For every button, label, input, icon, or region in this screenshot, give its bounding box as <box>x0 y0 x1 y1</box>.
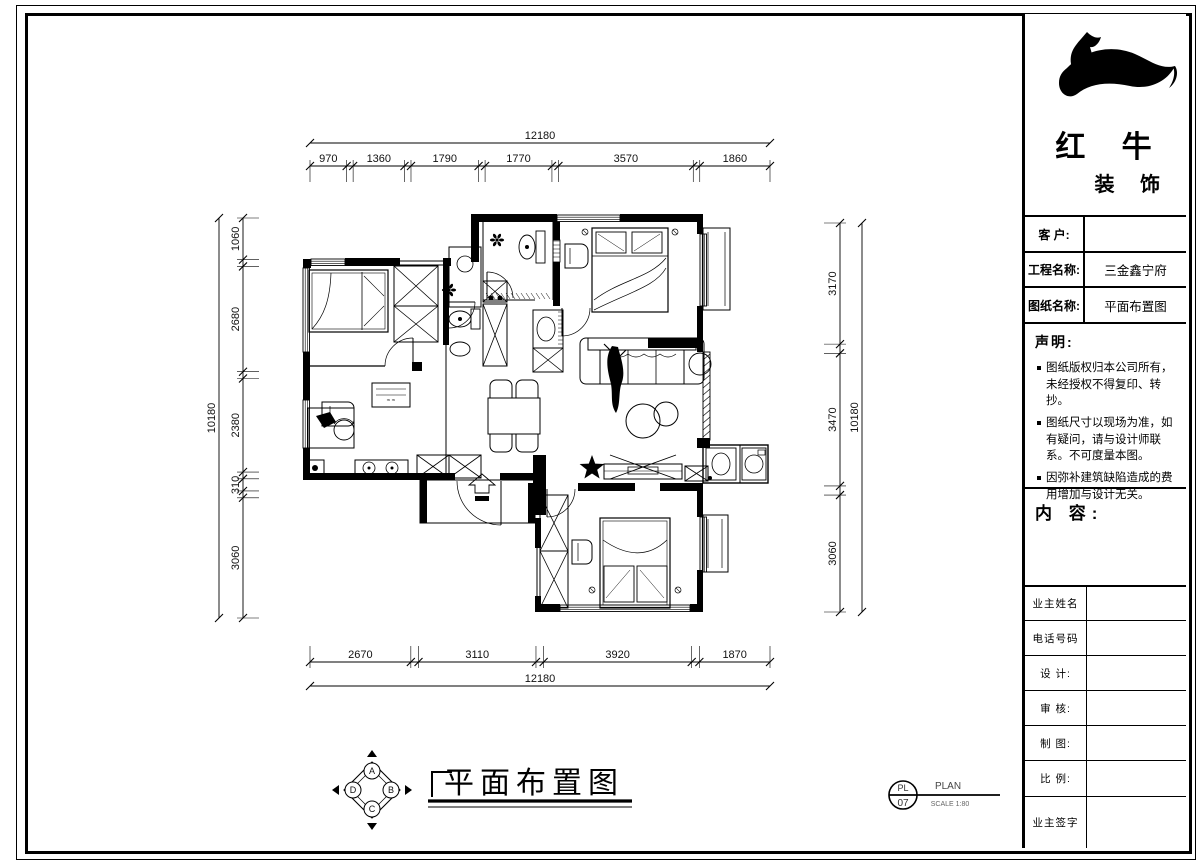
project-label: 工程名称: <box>1025 253 1085 286</box>
project-row: 工程名称: 三金鑫宁府 <box>1025 251 1186 286</box>
svg-text:1870: 1870 <box>722 649 746 661</box>
svg-text:12180: 12180 <box>525 673 556 685</box>
sign-row-draft: 制 图: <box>1025 725 1186 760</box>
sign-row-scale: 比 例: <box>1025 760 1186 796</box>
title-block: 红 牛 装 饰 客 户: 工程名称: 三金鑫宁府 图纸名称: 平面布置图 声明:… <box>1022 14 1186 848</box>
client-row: 客 户: <box>1025 215 1186 251</box>
company-logo: 红 牛 装 饰 <box>1025 14 1186 215</box>
svg-text:1060: 1060 <box>230 227 242 251</box>
project-value: 三金鑫宁府 <box>1085 253 1186 286</box>
statement-item: 图纸版权归本公司所有，未经授权不得复印、转抄。 <box>1035 360 1178 410</box>
statement-section: 声明: 图纸版权归本公司所有，未经授权不得复印、转抄。 图纸尺寸以现场为准，如有… <box>1025 322 1186 487</box>
furniture: ≈ ≈ <box>306 228 766 608</box>
svg-text:10180: 10180 <box>206 403 218 434</box>
drawing-name-value: 平面布置图 <box>1085 288 1186 322</box>
sign-row-review: 审 核: <box>1025 690 1186 725</box>
svg-text:平面布置图: 平面布置图 <box>444 767 624 800</box>
statement-heading: 声明: <box>1035 332 1178 352</box>
svg-text:1360: 1360 <box>367 153 391 165</box>
svg-text:PLAN: PLAN <box>935 781 961 792</box>
svg-text:3570: 3570 <box>614 153 638 165</box>
svg-text:3470: 3470 <box>827 407 839 431</box>
svg-text:1790: 1790 <box>433 153 457 165</box>
drawing-sheet: 9701360179017703570186012180267031103920… <box>0 0 1200 865</box>
client-label: 客 户: <box>1025 217 1085 251</box>
svg-text:1770: 1770 <box>506 153 530 165</box>
svg-text:PL: PL <box>897 783 908 793</box>
sign-row-owner-name: 业主姓名 <box>1025 585 1186 620</box>
logo-text-line2: 装 饰 <box>1094 168 1170 197</box>
statement-item: 图纸尺寸以现场为准，如有疑问，请与设计师联系。不可度量本图。 <box>1035 415 1178 465</box>
sign-row-owner-sign: 业主签字 <box>1025 796 1186 848</box>
svg-text:A: A <box>369 766 375 776</box>
svg-text:970: 970 <box>319 153 337 165</box>
svg-text:3920: 3920 <box>605 649 629 661</box>
svg-text:B: B <box>388 785 394 795</box>
svg-text:2670: 2670 <box>348 649 372 661</box>
sign-label: 业主签字 <box>1025 797 1087 848</box>
svg-text:D: D <box>350 785 357 795</box>
svg-text:10180: 10180 <box>849 402 861 433</box>
sheet-stamp: PL07PLANSCALE 1:80 <box>889 781 1000 809</box>
svg-text:1860: 1860 <box>723 153 747 165</box>
sign-label: 设 计: <box>1025 656 1087 690</box>
svg-text:3060: 3060 <box>827 541 839 565</box>
svg-text:2380: 2380 <box>230 413 242 437</box>
sign-label: 审 核: <box>1025 691 1087 725</box>
svg-text:≈ ≈: ≈ ≈ <box>387 398 396 404</box>
bull-logo-icon <box>1031 28 1181 120</box>
sign-label: 业主姓名 <box>1025 587 1087 620</box>
svg-text:2680: 2680 <box>230 307 242 331</box>
sign-label: 制 图: <box>1025 726 1087 760</box>
floor-plan-canvas: 9701360179017703570186012180267031103920… <box>0 0 1200 865</box>
svg-text:3170: 3170 <box>827 271 839 295</box>
drawing-title: ABCD平面布置图 <box>332 750 632 830</box>
svg-text:3060: 3060 <box>230 546 242 570</box>
logo-text-line1: 红 牛 <box>1055 122 1165 166</box>
svg-text:310: 310 <box>230 476 242 494</box>
client-value <box>1085 217 1186 251</box>
svg-text:SCALE 1:80: SCALE 1:80 <box>931 801 970 808</box>
sign-label: 电话号码 <box>1025 621 1087 655</box>
sign-row-designer: 设 计: <box>1025 655 1186 690</box>
sign-label: 比 例: <box>1025 761 1087 796</box>
svg-text:12180: 12180 <box>525 130 556 142</box>
walls <box>303 214 768 612</box>
svg-text:3110: 3110 <box>465 649 489 661</box>
statement-item: 因弥补建筑缺陷造成的费用增加与设计无关。 <box>1035 470 1178 503</box>
sign-row-phone: 电话号码 <box>1025 620 1186 655</box>
drawing-name-label: 图纸名称: <box>1025 288 1085 322</box>
svg-text:07: 07 <box>897 798 909 809</box>
svg-text:C: C <box>369 804 376 814</box>
drawing-name-row: 图纸名称: 平面布置图 <box>1025 286 1186 322</box>
